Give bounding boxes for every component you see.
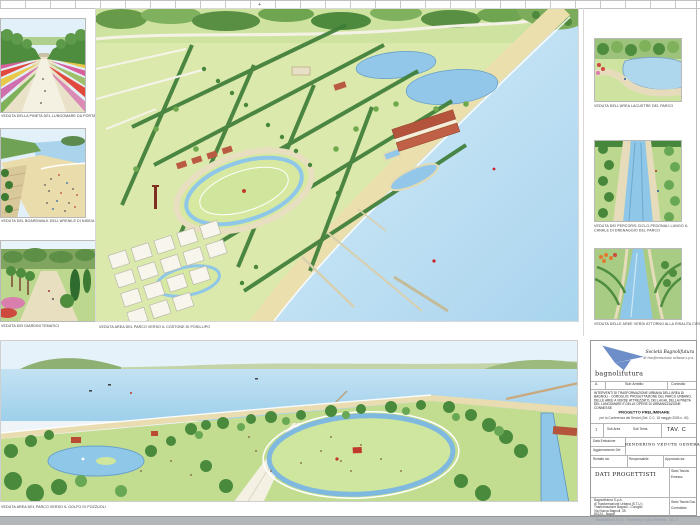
registration-mark-icon: + (258, 1, 261, 7)
giardini-illustration (1, 241, 96, 322)
panel-boardwalk (0, 128, 86, 218)
project-description: INTERVENTI DI TRASFORMAZIONE URBANA DELL… (594, 391, 694, 410)
company-name: Società Bagnolifutura (625, 349, 694, 354)
caption-risalita: VEDUTA DELLE AREE VERDI ATTORNO ALLA RIS… (594, 322, 700, 326)
header-cell-ctrl: Controllo (671, 382, 685, 386)
sub-tema-label: Sub Tema (633, 427, 647, 431)
pineta-illustration (1, 19, 86, 113)
panel-panorama-golfo (0, 340, 578, 502)
caption-panorama: VEDUTA AREA DEL PARCO VERSO IL GOLFO DI … (1, 505, 106, 509)
sheet-inner-divider (583, 8, 584, 336)
sign-col-2: Responsabile: (629, 457, 649, 461)
company-subtitle: di trasformazione urbana s.p.a. (643, 356, 694, 360)
risalita-illustration (595, 249, 682, 320)
sheet-num: 1 (595, 427, 597, 432)
tav-number: TAV. C (667, 426, 686, 432)
designers-label: DATI PROGETTISTI (595, 471, 656, 477)
caption-giardini: VEDUTA DEI GIARDINI TEMATICI (1, 324, 59, 328)
phase-title: PROGETTO PRELIMINARE (591, 410, 697, 415)
panel-risalita-circolare (594, 248, 682, 320)
drawing-sheet: + (0, 0, 700, 525)
sub-area-label: Sub Area (607, 427, 620, 431)
aerial-parco-illustration (96, 9, 579, 322)
header-cell-a: A (595, 382, 597, 386)
caption-lacustre: VEDUTA DELL'AREA LACUSTRE DEL PARCO (594, 104, 673, 108)
update-label: Aggiornamento Del (593, 448, 620, 452)
boat-dot (432, 259, 435, 262)
emission-label: Data Emissione (593, 439, 615, 443)
panel-giardini-tematici (0, 240, 96, 322)
sheet-bottom-edge (0, 516, 700, 525)
boardwalk-illustration (1, 129, 86, 218)
phase-subtitle: per la Conferenza dei Servizi (Del. C.C.… (591, 416, 697, 420)
panel-pineta-lungomare (0, 18, 86, 113)
lacustre-illustration (595, 39, 682, 102)
title-block: Società Bagnolifutura di trasformazione … (590, 340, 697, 516)
caption-percorsi: VEDUTA DEI PERCORSI CICLO-PEDONALI LUNGO… (594, 224, 700, 233)
sign-col-1: Redatto da: (593, 457, 610, 461)
canale-illustration (595, 141, 682, 222)
panel-percorsi-canale (594, 140, 682, 222)
plot-footer-note: Bagnolifutura S.p.A. - Rendering Vedute … (596, 518, 678, 522)
header-cell-sub: Sub Ambito (625, 382, 643, 386)
address-line-5: 80124 - Napoli (594, 512, 615, 516)
drawing-title: RENDERING VEDUTE GENERALI (625, 442, 697, 447)
doc-state-1: Stato Tavola Doc. (671, 500, 696, 504)
wordmark: bagnolifutura (595, 370, 643, 377)
sign-col-3: Approvato da: (665, 457, 685, 461)
left-pond (48, 446, 144, 476)
panel-area-lacustre (594, 38, 682, 102)
state-label: Stato Tavola: (671, 469, 689, 473)
doc-state-2: Controllato (671, 506, 686, 510)
caption-pineta: VEDUTA DELLA PINETA DEL LUNGOMARE DA POR… (1, 114, 109, 118)
caption-boardwalk: VEDUTA DEL BOARDWALK DELL'ARENILE DI NIS… (1, 219, 94, 223)
red-figure (335, 457, 338, 460)
caption-aerial: VEDUTA AREA DEL PARCO VERSO IL COSTONE D… (99, 325, 210, 329)
panel-aerial-parco (95, 8, 579, 322)
state-value: Emesso (671, 475, 683, 479)
panorama-illustration (1, 341, 578, 502)
